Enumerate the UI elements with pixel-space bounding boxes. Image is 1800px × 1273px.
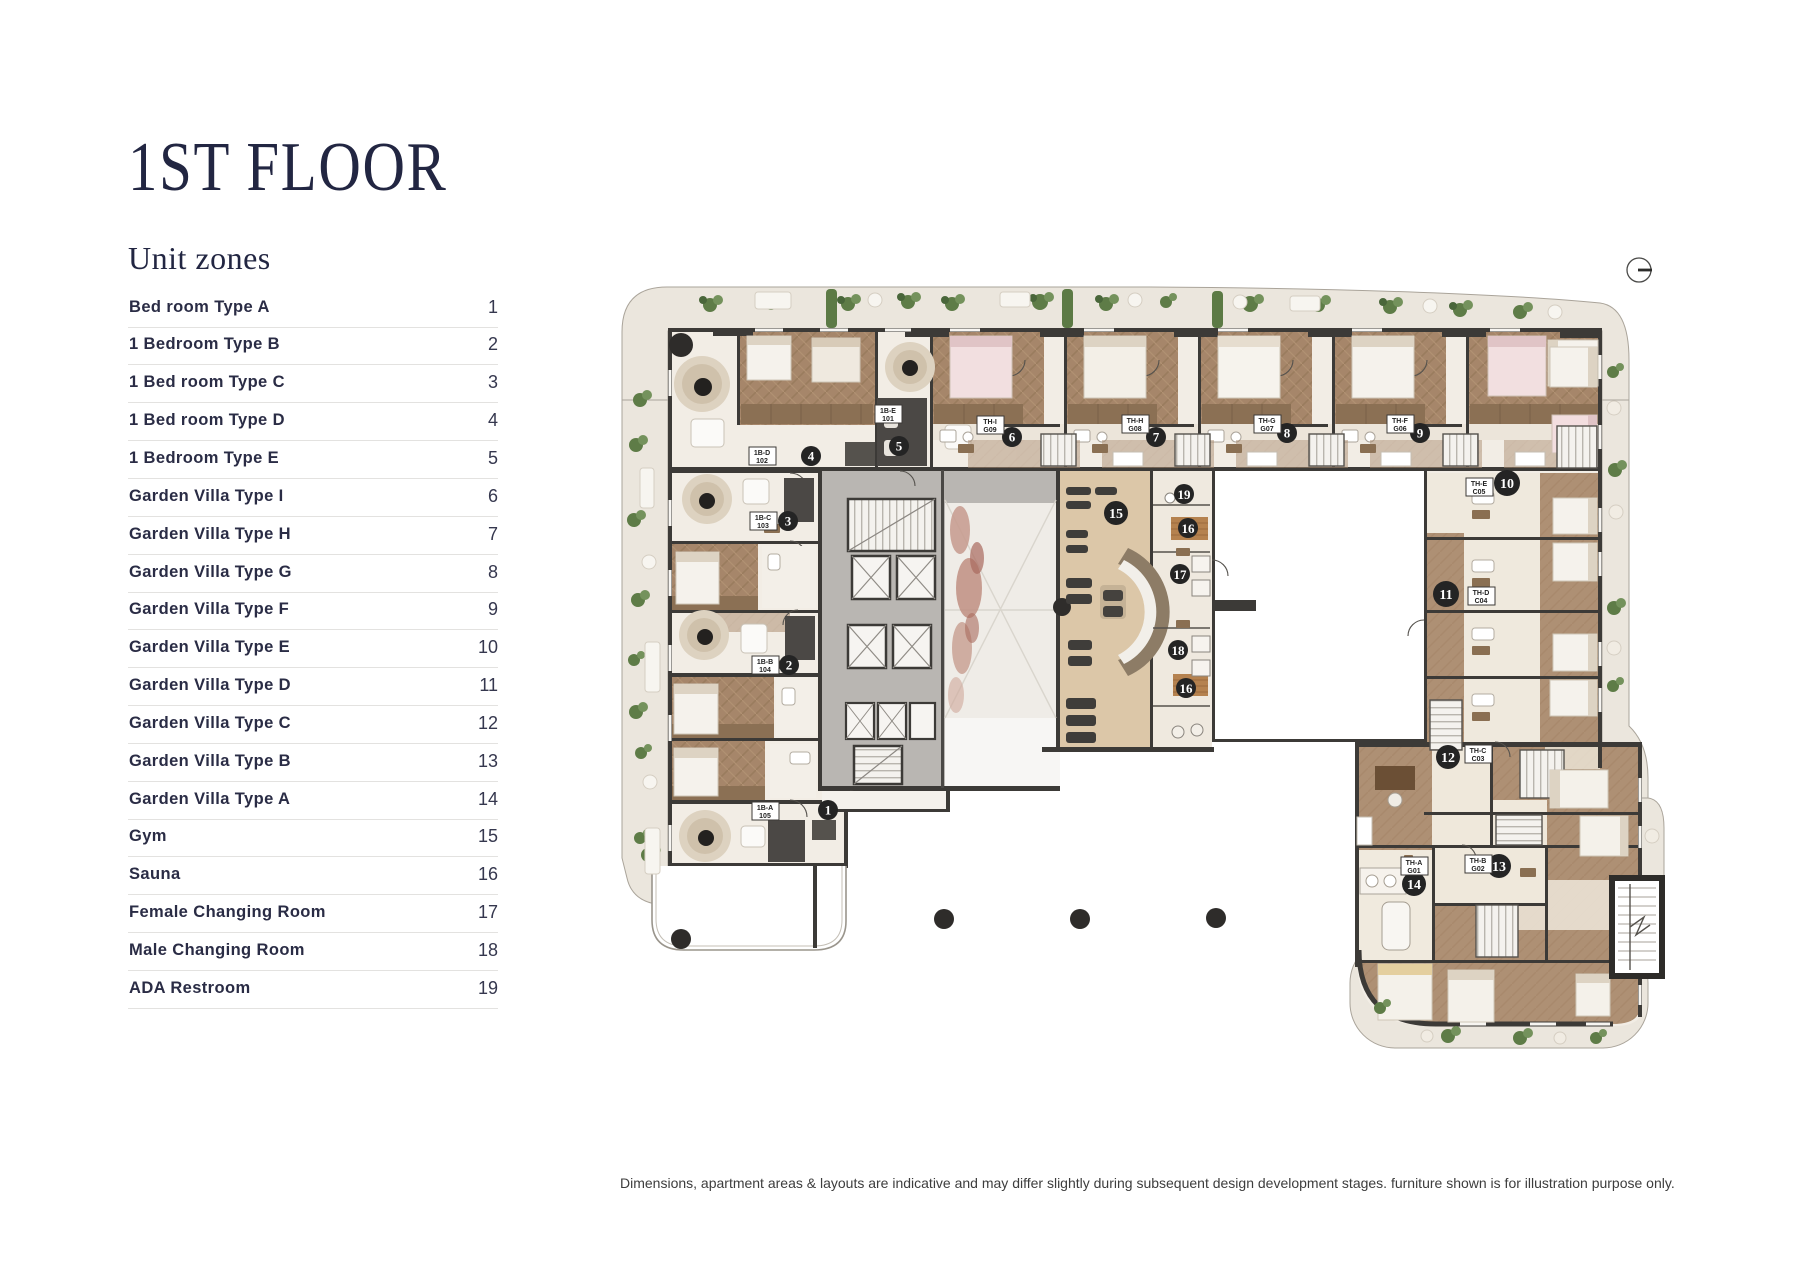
svg-text:11: 11 <box>1439 588 1452 603</box>
svg-text:105: 105 <box>759 813 771 820</box>
svg-text:1B-E: 1B-E <box>880 408 896 415</box>
svg-text:9: 9 <box>1417 426 1424 441</box>
svg-text:17: 17 <box>1174 567 1188 582</box>
svg-text:TH-D: TH-D <box>1473 590 1490 597</box>
svg-text:3: 3 <box>785 514 792 529</box>
svg-text:TH-H: TH-H <box>1127 418 1144 425</box>
svg-text:C03: C03 <box>1472 756 1485 763</box>
svg-text:G02: G02 <box>1471 866 1484 873</box>
svg-text:G07: G07 <box>1260 426 1273 433</box>
svg-text:TH-E: TH-E <box>1471 481 1488 488</box>
svg-text:15: 15 <box>1109 507 1123 522</box>
svg-text:104: 104 <box>759 667 771 674</box>
svg-text:6: 6 <box>1009 430 1016 445</box>
svg-text:13: 13 <box>1492 860 1506 875</box>
svg-text:2: 2 <box>786 658 793 673</box>
svg-text:G08: G08 <box>1128 426 1141 433</box>
svg-text:C05: C05 <box>1473 489 1486 496</box>
svg-text:5: 5 <box>896 439 903 454</box>
svg-text:TH-F: TH-F <box>1392 418 1409 425</box>
svg-text:16: 16 <box>1182 521 1196 536</box>
svg-text:TH-I: TH-I <box>983 419 997 426</box>
svg-text:1B-C: 1B-C <box>755 515 771 522</box>
svg-text:C04: C04 <box>1475 598 1488 605</box>
svg-text:1B-B: 1B-B <box>757 659 773 666</box>
svg-text:16: 16 <box>1180 681 1194 696</box>
svg-text:TH-G: TH-G <box>1258 418 1276 425</box>
svg-text:1: 1 <box>825 803 832 818</box>
svg-text:1B-D: 1B-D <box>754 450 770 457</box>
svg-text:10: 10 <box>1500 477 1514 492</box>
svg-text:12: 12 <box>1441 751 1455 766</box>
svg-text:G06: G06 <box>1393 426 1406 433</box>
svg-text:G01: G01 <box>1407 868 1420 875</box>
svg-text:102: 102 <box>756 458 768 465</box>
svg-text:TH-C: TH-C <box>1470 748 1487 755</box>
svg-text:14: 14 <box>1407 878 1421 893</box>
svg-text:TH-B: TH-B <box>1470 858 1487 865</box>
svg-text:103: 103 <box>757 523 769 530</box>
svg-text:G09: G09 <box>983 427 996 434</box>
svg-text:7: 7 <box>1153 430 1160 445</box>
svg-text:18: 18 <box>1172 643 1186 658</box>
svg-text:8: 8 <box>1284 426 1291 441</box>
svg-text:4: 4 <box>808 449 815 464</box>
svg-text:19: 19 <box>1178 487 1192 502</box>
svg-text:1B-A: 1B-A <box>757 805 773 812</box>
svg-text:TH-A: TH-A <box>1406 860 1423 867</box>
svg-text:101: 101 <box>882 416 894 423</box>
